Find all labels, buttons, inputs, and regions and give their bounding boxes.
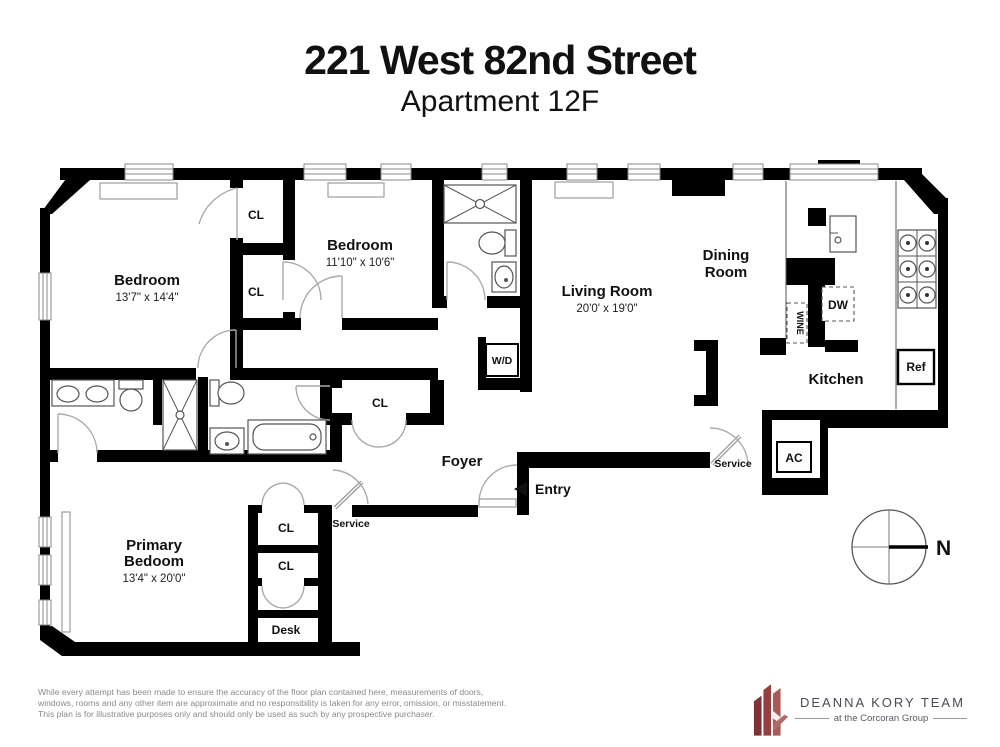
window-strip <box>304 164 346 180</box>
tagline-rule-left <box>795 718 829 719</box>
door-arc <box>58 414 97 453</box>
burner <box>919 235 935 251</box>
floor-plan-page: 221 West 82nd Street Apartment 12F <box>0 0 1000 747</box>
service-label: Service <box>332 518 370 530</box>
dining-room-label-line1: Dining <box>703 247 750 264</box>
disclaimer-line: This plan is for illustrative purposes o… <box>38 709 508 720</box>
logo-team-name: DEANNA KORY TEAM <box>800 695 962 710</box>
dishwasher-label: DW <box>828 298 849 312</box>
primary-bedroom-dims: 13'4" x 20'0" <box>122 573 185 585</box>
door-arc <box>262 483 283 505</box>
refrigerator-label: Ref <box>906 360 926 374</box>
door-arc <box>262 586 283 608</box>
door-arc <box>283 483 304 505</box>
dining-room-label-line2: Room <box>705 264 748 281</box>
kitchen-sink <box>830 216 856 252</box>
bedroom2-dims: 11'10" x 10'6" <box>326 257 395 269</box>
bathtub <box>248 420 326 454</box>
window-strip <box>628 164 660 180</box>
shower <box>444 185 516 223</box>
kitchen-label: Kitchen <box>808 371 863 388</box>
floor-plan-drawing: N Bedroom 13'7" x 14'4" Bedroom 11'10" x… <box>0 0 1000 747</box>
door-arc <box>479 465 517 503</box>
window-strip <box>39 600 51 625</box>
window-strip <box>381 164 411 180</box>
burner <box>900 261 916 277</box>
door-arc <box>283 586 304 608</box>
sink <box>492 262 516 292</box>
washer-dryer-label: W/D <box>492 355 513 367</box>
double-sink-vanity <box>52 380 114 406</box>
logo-tagline: at the Corcoran Group <box>834 713 929 724</box>
closet-label: CL <box>372 396 388 410</box>
window-sill <box>328 183 384 197</box>
closet-label: CL <box>248 285 264 299</box>
burner <box>900 287 916 303</box>
closet-label: CL <box>278 521 294 535</box>
shower <box>163 380 197 450</box>
window-strip <box>733 164 763 180</box>
window-strip <box>567 164 597 180</box>
compass-north-label: N <box>936 537 951 560</box>
window-strip <box>125 164 173 180</box>
bedroom2-label: Bedroom <box>327 237 393 254</box>
primary-bedroom-label-line2: Bedoom <box>124 553 184 570</box>
burner <box>919 287 935 303</box>
door-arc <box>333 470 368 504</box>
entry-label: Entry <box>535 481 571 497</box>
tagline-rule-right <box>933 718 967 719</box>
logo-building-icon <box>752 681 792 737</box>
primary-bedroom-label-line1: Primary <box>126 537 183 554</box>
bedroom1-label: Bedroom <box>114 272 180 289</box>
toilet <box>119 380 143 411</box>
desk-label: Desk <box>272 623 301 637</box>
foyer-label: Foyer <box>442 453 483 470</box>
window-bay-mullion <box>62 512 70 632</box>
living-room-dims: 20'0' x 19'0" <box>576 303 637 315</box>
brokerage-logo: DEANNA KORY TEAM at the Corcoran Group <box>752 681 962 737</box>
wine-label: WINE <box>795 311 805 335</box>
window-strip <box>790 164 878 180</box>
window-strip <box>39 517 51 547</box>
door-arc <box>352 420 379 447</box>
toilet <box>210 380 244 406</box>
bedroom1-dims: 13'7" x 14'4" <box>115 292 178 304</box>
entry-door-leaf <box>479 499 516 507</box>
door-arc <box>199 188 237 224</box>
burner <box>919 261 935 277</box>
disclaimer-line: While every attempt has been made to ens… <box>38 687 508 698</box>
compass-rose: N <box>852 510 951 584</box>
service-label: Service <box>714 458 752 470</box>
window-sill <box>555 182 613 198</box>
living-room-label: Living Room <box>562 283 653 300</box>
toilet <box>479 230 516 256</box>
sink <box>210 428 244 454</box>
disclaimer-line: windows, rooms and any other item are ap… <box>38 698 508 709</box>
window-sill <box>100 183 177 199</box>
ac-label: AC <box>785 451 803 465</box>
disclaimer-text: While every attempt has been made to ens… <box>38 687 508 720</box>
door-arc <box>283 262 321 300</box>
stove <box>898 230 936 308</box>
window-strip <box>39 555 51 585</box>
window-strip <box>482 164 507 180</box>
burner <box>900 235 916 251</box>
door-arc <box>447 262 485 300</box>
closet-label: CL <box>278 559 294 573</box>
door-arc <box>379 420 406 447</box>
window-strip <box>39 273 51 320</box>
closet-label: CL <box>248 208 264 222</box>
